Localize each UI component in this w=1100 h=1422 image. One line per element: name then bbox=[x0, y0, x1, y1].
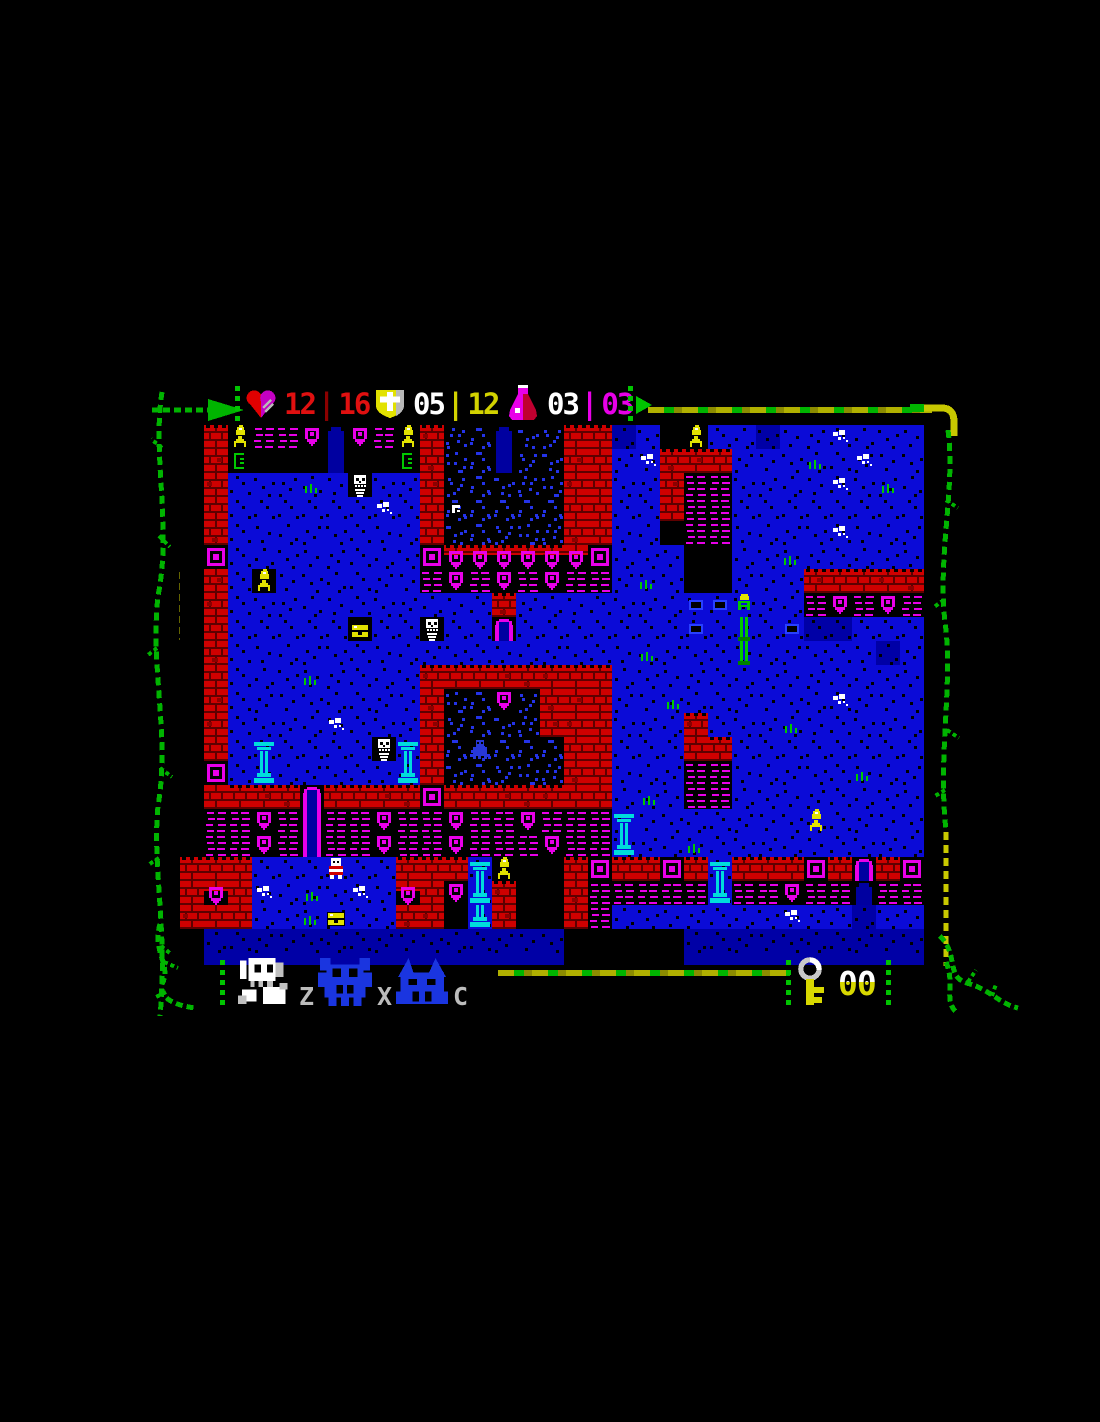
vine-border-left bbox=[144, 386, 184, 1020]
party-key-label: C bbox=[453, 986, 468, 1008]
party-separator-left bbox=[220, 960, 225, 1008]
potions-stat: 03|03 bbox=[504, 384, 632, 424]
health-max: 16 bbox=[338, 384, 369, 424]
dungeon-map[interactable] bbox=[180, 425, 924, 965]
vine-corner-bottom-right bbox=[928, 926, 1024, 1018]
border-bottom-line bbox=[498, 970, 790, 976]
party-key-label: X bbox=[377, 986, 392, 1008]
armor-stat: 05|12 bbox=[372, 384, 498, 424]
potions-current: 03 bbox=[547, 384, 578, 424]
armor-max: 12 bbox=[467, 384, 498, 424]
key-icon bbox=[794, 957, 830, 1009]
party-member-demon[interactable]: X bbox=[316, 956, 392, 1008]
game-screen: 12|16 05|12 03|03 bbox=[0, 0, 1100, 1422]
vine-border-right bbox=[922, 430, 966, 1022]
health-current: 12 bbox=[284, 384, 315, 424]
shield-icon bbox=[372, 386, 408, 422]
border-top-line bbox=[648, 407, 932, 413]
flask-icon bbox=[504, 384, 542, 424]
health-separator: | bbox=[318, 384, 335, 424]
party-member-beast[interactable]: C bbox=[392, 956, 468, 1008]
potions-separator: | bbox=[581, 384, 598, 424]
vine-arrow-icon bbox=[634, 390, 656, 420]
hud-separator-left bbox=[235, 386, 240, 422]
keys-count: 00 bbox=[838, 964, 876, 1003]
knight-portrait-icon bbox=[238, 956, 296, 1008]
health-stat: 12|16 bbox=[243, 384, 369, 424]
armor-separator: | bbox=[447, 384, 464, 424]
heart-icon bbox=[243, 386, 279, 422]
party-key-label: Z bbox=[299, 986, 314, 1008]
hud-separator-right bbox=[628, 386, 633, 422]
armor-current: 05 bbox=[413, 384, 444, 424]
keys-separator-right bbox=[886, 960, 891, 1008]
keys-counter: 00 bbox=[794, 956, 876, 1010]
beast-portrait-icon bbox=[392, 956, 450, 1008]
demon-portrait-icon bbox=[316, 956, 374, 1008]
party-member-knight[interactable]: Z bbox=[238, 956, 314, 1008]
keys-separator-left bbox=[786, 960, 791, 1008]
